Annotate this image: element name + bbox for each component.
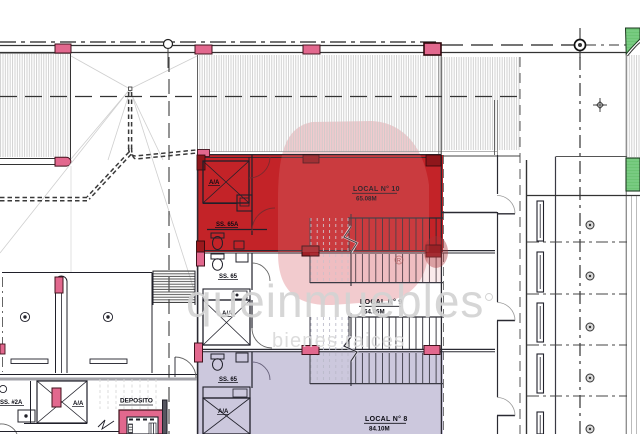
svg-text:SS. 65: SS. 65 xyxy=(219,377,238,383)
svg-text:A/A: A/A xyxy=(209,180,220,186)
svg-text:SS. 65A: SS. 65A xyxy=(216,222,239,228)
svg-text:bienes raices: bienes raices xyxy=(272,330,405,352)
svg-text:DEPOSITO: DEPOSITO xyxy=(120,398,153,405)
svg-text:R: R xyxy=(397,259,402,265)
svg-text:A/A: A/A xyxy=(218,409,229,415)
svg-text:A/A: A/A xyxy=(73,401,84,407)
svg-text:84.10M: 84.10M xyxy=(369,426,390,433)
svg-text:SS. #2A: SS. #2A xyxy=(0,400,23,406)
svg-text:queinmuebles: queinmuebles xyxy=(186,275,484,327)
svg-text:LOCAL N° 8: LOCAL N° 8 xyxy=(365,415,408,423)
